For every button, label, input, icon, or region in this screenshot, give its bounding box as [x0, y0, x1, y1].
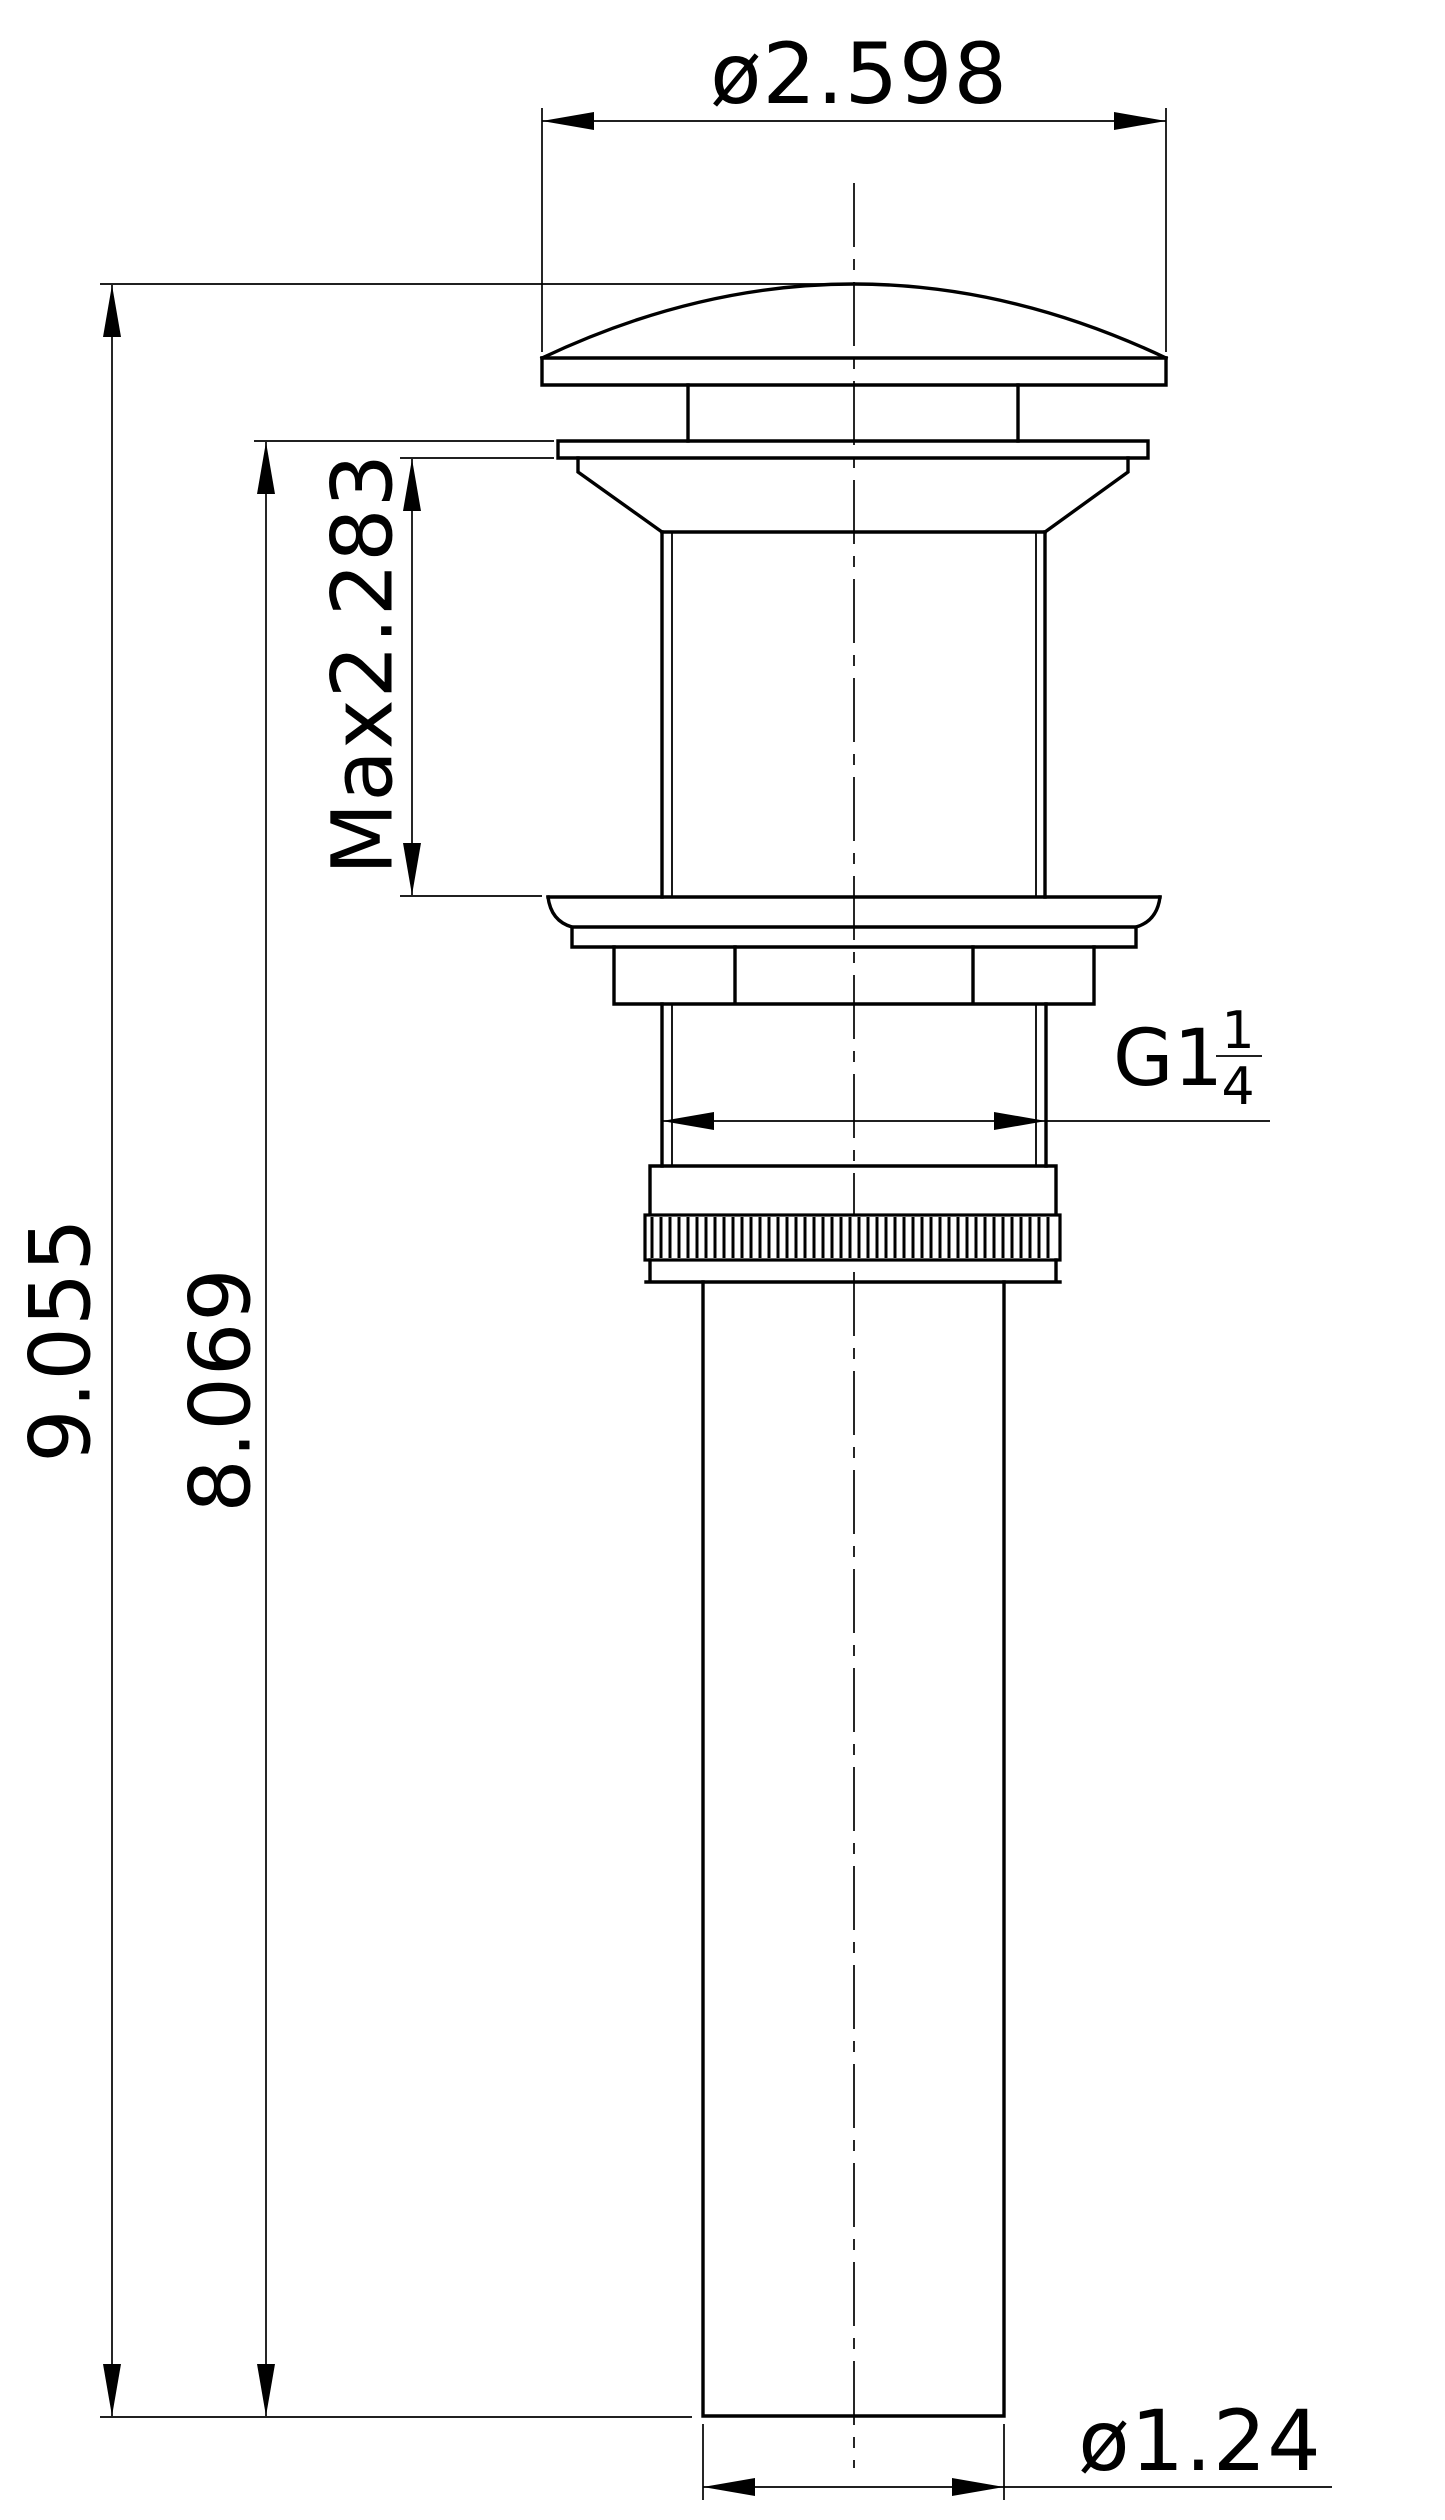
- upper-flange: [558, 441, 1148, 532]
- below-flange-height-label: 8.069: [171, 1267, 269, 1512]
- dimension-overall-height: 9.055: [11, 284, 854, 2417]
- dimension-tail-pipe-diameter: ø1.24: [703, 2392, 1332, 2500]
- thread-fraction-denominator: 4: [1221, 1057, 1254, 1117]
- thread-size-label: G1: [1113, 1014, 1223, 1104]
- dimension-max-insert-depth: Max2.283: [313, 453, 554, 896]
- overall-height-label: 9.055: [11, 1217, 109, 1462]
- max-insert-depth-label: Max2.283: [313, 453, 411, 875]
- cap-neck: [688, 385, 1018, 441]
- drain-technical-drawing: ø2.598 9.055 8.069 Max2.283 G1 1 4: [0, 0, 1445, 2520]
- dimension-thread-size: G1 1 4: [662, 1001, 1270, 1130]
- tail-pipe-diameter-label: ø1.24: [1078, 2392, 1321, 2490]
- thread-fraction-numerator: 1: [1221, 1001, 1254, 1061]
- locking-nut: [645, 1166, 1060, 1282]
- cap-diameter-label: ø2.598: [710, 25, 1008, 123]
